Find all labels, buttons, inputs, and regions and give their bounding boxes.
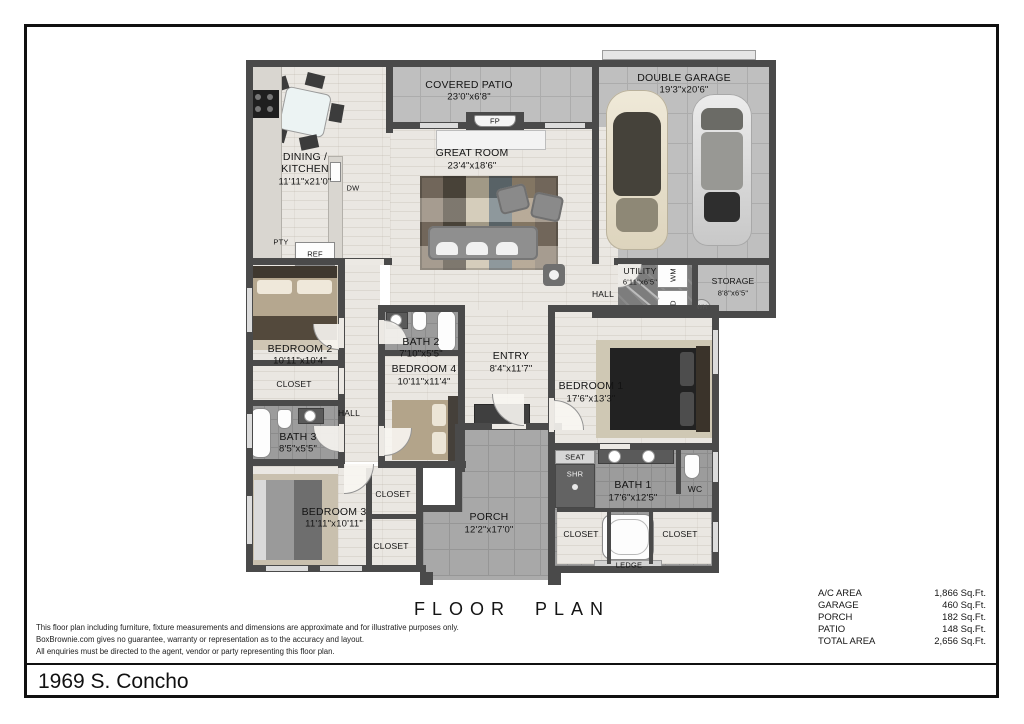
wall-bedroom1-top [548,305,719,312]
porch-post [548,572,561,585]
sofa-cushion [496,242,518,255]
shr-label: SHR [567,470,583,478]
bedroom1-pillow [680,392,694,426]
wc-toilet [684,454,700,479]
disclaimer-line-2: BoxBrownie.com gives no guarantee, warra… [36,634,364,647]
disclaimer-line-3: All enquiries must be directed to the ag… [36,646,335,659]
area-value: 460 Sq.Ft. [942,600,986,612]
great-room-label: GREAT ROOM [436,148,509,159]
dw-label: DW [347,184,360,192]
bedroom4-pillow [432,432,446,454]
bath3-dims: 8'5"x5'5" [279,444,317,454]
garage-door [602,50,756,60]
ledge-label: LEDGE [616,561,642,569]
fp-label: FP [490,117,500,125]
sofa-cushion [466,242,488,255]
kitchen-label: KITCHEN [281,164,329,175]
bath1-label: BATH 1 [614,480,651,491]
area-label: TOTAL AREA [818,636,875,648]
window [247,414,252,448]
car-silver-rear-window [704,192,740,222]
wall-utility-bottom [592,311,776,318]
bedroom4-dims: 10'11"x11'4" [397,377,450,387]
bath3-toilet [277,409,292,429]
car-cream-hood [616,198,658,232]
hall-right-label: HALL [592,290,614,299]
area-row: GARAGE 460 Sq.Ft. [818,600,986,612]
bedroom2-headboard [253,266,337,278]
address-bar: 1969 S. Concho [27,663,996,695]
porch-floor-main [462,430,548,576]
entry-dims: 8'4"x11'7" [490,364,533,374]
stove-burner [255,106,261,112]
bath3-sink [304,410,316,422]
wall-closet-divider [366,514,421,519]
entry-label: ENTRY [493,351,529,362]
bedroom4-pillow [432,404,446,426]
closet2-label: CLOSET [373,542,408,551]
window [247,288,252,332]
ref-label: REF [307,250,323,258]
wh-label: WH [697,305,707,311]
covered-patio-dims: 23'0"x6'8" [447,92,491,102]
double-garage-dims: 19'3"x20'6" [659,85,708,95]
utility-label: UTILITY [623,267,656,276]
area-row: PORCH 182 Sq.Ft. [818,612,986,624]
wall-bedroom3-top [246,459,342,466]
bedroom3-label: BEDROOM 3 [302,507,367,518]
shower-drain [572,484,578,490]
bedroom4-label: BEDROOM 4 [392,364,457,375]
area-value: 2,656 Sq.Ft. [934,636,986,648]
disclaimer-line-1: This floor plan including furniture, fix… [36,622,459,635]
storage-label: STORAGE [712,277,755,286]
bedroom3-dims: 11'11"x10'11" [305,519,363,529]
area-label: PATIO [818,624,845,636]
bath3-door-gap [339,424,344,452]
wall-tub-right [649,512,653,564]
dining-kitchen-dims: 11'11"x21'0" [278,177,331,187]
bedroom1-label: BEDROOM 1 [559,381,624,392]
bath1-closet-right-label: CLOSET [662,530,697,539]
dryer-label: D [669,300,677,306]
hall-left-label: HALL [338,409,360,418]
window [713,330,718,374]
window [713,452,718,482]
double-garage-label: DOUBLE GARAGE [637,73,731,84]
porch-dims: 12'2"x17'0" [464,525,513,535]
bedroom1-dims: 17'6"x13'3" [566,394,615,404]
area-row: A/C AREA 1,866 Sq.Ft. [818,588,986,600]
area-value: 182 Sq.Ft. [942,612,986,624]
porch-label: PORCH [470,512,509,523]
utility-dims: 6'11"x6'5" [623,278,657,286]
area-row: PATIO 148 Sq.Ft. [818,624,986,636]
window [713,522,718,552]
stove-burner [267,94,273,100]
porch-post [420,572,433,585]
bedroom3-pillows [254,480,266,560]
wall-tub-left [607,512,611,564]
lamp [549,270,559,280]
closet-door-gap [339,368,344,394]
car-silver-windshield [701,108,743,130]
seat-label: SEAT [565,453,585,461]
bath1-closet-left-label: CLOSET [563,530,598,539]
wall-porch-left-upper [455,424,462,512]
bedroom2-door-gap [339,318,344,348]
sofa-cushion [436,242,458,255]
address-text: 1969 S. Concho [38,670,189,694]
area-row: TOTAL AREA 2,656 Sq.Ft. [818,636,986,648]
car-cream-roof [613,112,661,196]
area-table: A/C AREA 1,866 Sq.Ft. GARAGE 460 Sq.Ft. … [818,588,986,648]
bedroom1-pillow [680,352,694,386]
hall-opening [344,259,384,265]
wall-bath1-closets-top [557,508,712,512]
wall-closet-bath3 [250,400,340,406]
wall-wc [676,450,681,494]
bath2-dims: 7'10"x5'5" [399,349,443,359]
wall-bath1-left [548,443,555,573]
bedroom2-pillow [257,280,292,294]
bath2-tub [437,310,456,352]
wall-garage-right [769,60,776,318]
bath3-label: BATH 3 [279,432,316,443]
area-label: GARAGE [818,600,859,612]
area-value: 148 Sq.Ft. [942,624,986,636]
bedroom2-closet-label: CLOSET [276,380,311,389]
wall-closets-right [416,466,423,572]
wm-label: WM [669,268,677,282]
bedroom2-dims: 10'11"x10'4" [273,356,327,366]
bath1-sink [608,450,621,463]
bedroom1-headboard [696,346,710,432]
wall-bath1-top [548,443,719,450]
bath1-sink [642,450,655,463]
bath1-dims: 17'6"x12'5" [608,493,657,503]
area-value: 1,866 Sq.Ft. [934,588,986,600]
covered-patio-label: COVERED PATIO [425,80,512,91]
wall-porch-step [416,505,462,512]
wc-label: WC [688,485,703,494]
window [266,566,308,571]
floor-plan-page: COVERED PATIO 23'0"x6'8" DOUBLE GARAGE 1… [0,0,1024,724]
bedroom2-pillow [297,280,332,294]
stove-burner [267,106,273,112]
bedroom2-label: BEDROOM 2 [268,344,333,355]
plan-title: FLOOR PLAN [414,600,610,618]
wall-garage-left [592,60,599,264]
dining-label: DINING / [283,152,327,163]
area-label: PORCH [818,612,852,624]
window [320,566,362,571]
window [247,496,252,544]
stove-burner [255,94,261,100]
bath2-label: BATH 2 [402,337,439,348]
window [420,123,458,128]
bath1-tub-inner [607,519,649,555]
wall-bath2-top [378,305,465,312]
storage-dims: 8'8"x6'5" [718,289,748,297]
car-silver-roof [701,132,743,190]
wall-top [246,60,776,67]
window [545,123,585,128]
porch-floor-ext [423,512,463,576]
bath2-toilet [412,311,427,331]
porch-edge [433,576,548,580]
area-label: A/C AREA [818,588,862,600]
kitchen-sink [330,162,341,182]
great-room-dims: 23'4"x18'6" [447,161,496,171]
closet1-label: CLOSET [375,490,410,499]
pty-label: PTY [273,238,288,246]
bath1-door-gap [600,444,630,449]
bath3-tub [250,408,271,458]
